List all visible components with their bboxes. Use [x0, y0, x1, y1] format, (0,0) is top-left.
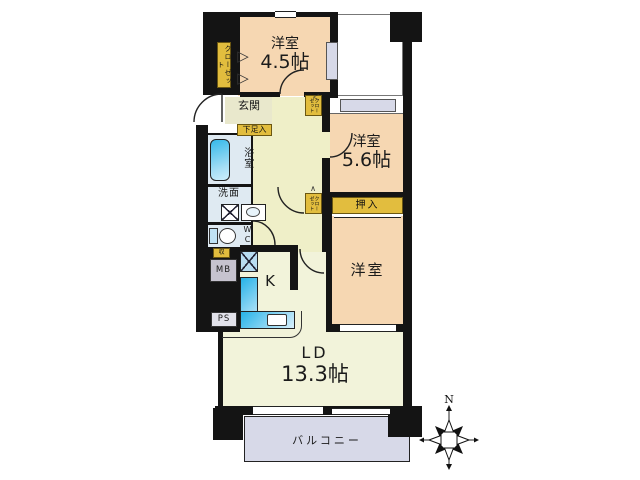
toilet-tank — [209, 228, 218, 244]
north-label: N — [444, 393, 454, 406]
label-toilet: WC — [242, 224, 253, 246]
label-bedroom3: 洋室 — [334, 258, 401, 284]
door-arc-toilet — [253, 221, 275, 245]
label-bathroom: 浴室 — [241, 140, 253, 176]
window — [275, 11, 296, 18]
window — [340, 99, 396, 112]
wall — [290, 245, 298, 290]
window — [253, 406, 323, 415]
label-bedroom1: 洋室 4.5帖 — [240, 24, 330, 86]
washing-machine-icon — [221, 204, 239, 221]
label-washroom: 洗面 — [207, 187, 251, 201]
compass-rose: N — [415, 392, 483, 472]
wall — [240, 92, 280, 97]
toilet-icon — [209, 227, 239, 246]
window — [332, 408, 390, 415]
label-bedroom2: 洋室 5.6帖 — [330, 118, 403, 188]
small-storage-label: 収 — [213, 248, 230, 258]
closet-main-label: クローゼット — [217, 42, 231, 88]
living-size: 13.3帖 — [281, 362, 349, 386]
label-entrance: 玄関 — [228, 98, 270, 114]
label-living-dining: LD 13.3帖 — [250, 338, 380, 392]
door-arc-entrance — [194, 94, 222, 122]
closet-door-mark: ∧ — [307, 184, 319, 194]
shoe-cabinet-label: 下足入 — [237, 124, 272, 136]
window — [340, 324, 396, 332]
wall — [403, 40, 412, 408]
floor-plan: クローゼット 下足入 クローゼット クローゼット 押入 収 ▷ ▷ ＜ ∧ 洋室… — [0, 0, 640, 480]
bedroom2-size: 5.6帖 — [342, 150, 391, 172]
label-meter-box: MB — [210, 259, 237, 282]
oshiire-label: 押入 — [332, 197, 403, 214]
basin-bowl — [246, 207, 260, 217]
wall — [196, 125, 208, 247]
closet-door-mark: ＜ — [310, 93, 322, 103]
label-pipe-shaft: PS — [211, 312, 237, 327]
bedroom1-size: 4.5帖 — [260, 52, 309, 74]
bathtub-icon — [210, 139, 230, 181]
label-kitchen: K — [258, 272, 282, 292]
door-arc-living — [300, 249, 324, 273]
wall — [390, 12, 422, 42]
basin-icon — [241, 204, 266, 221]
closet-lower-label: クローゼット — [305, 193, 322, 214]
bedroom1-name: 洋室 — [271, 36, 299, 52]
room-living-floor-ext — [222, 332, 242, 406]
wall — [213, 408, 243, 440]
wall — [326, 197, 332, 332]
bedroom2-name: 洋室 — [353, 134, 381, 150]
door-arc-washroom — [278, 187, 304, 213]
toilet-bowl — [219, 228, 236, 244]
living-name: LD — [301, 344, 328, 362]
fridge-space-icon — [240, 251, 258, 272]
label-balcony: バルコニー — [254, 432, 400, 450]
wall — [322, 95, 330, 132]
wall — [218, 332, 223, 408]
